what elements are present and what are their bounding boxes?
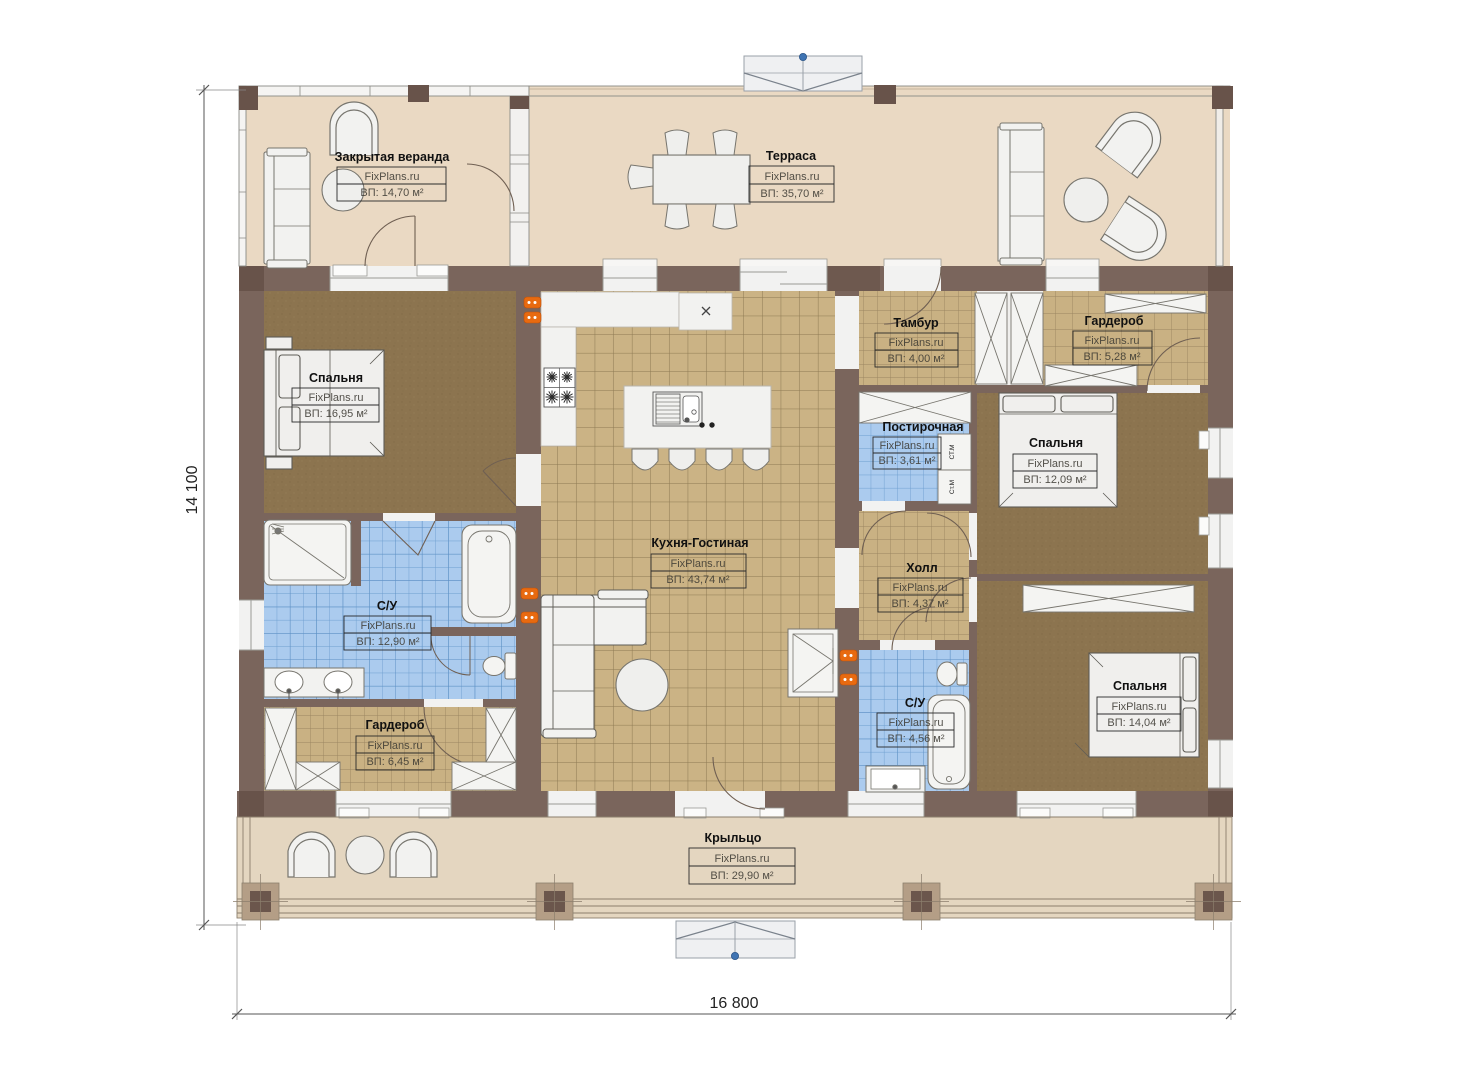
svg-text:FixPlans.ru: FixPlans.ru bbox=[364, 171, 419, 183]
svg-text:ВП: 5,28 м²: ВП: 5,28 м² bbox=[1083, 351, 1140, 363]
svg-text:FixPlans.ru: FixPlans.ru bbox=[888, 337, 943, 349]
svg-text:Кухня-Гостиная: Кухня-Гостиная bbox=[651, 536, 748, 550]
svg-text:FixPlans.ru: FixPlans.ru bbox=[1027, 458, 1082, 470]
svg-text:FixPlans.ru: FixPlans.ru bbox=[308, 392, 363, 404]
svg-text:14 100: 14 100 bbox=[184, 465, 201, 514]
svg-text:ВП: 16,95 м²: ВП: 16,95 м² bbox=[304, 408, 368, 420]
svg-text:Постирочная: Постирочная bbox=[882, 420, 963, 434]
svg-text:Спальня: Спальня bbox=[309, 371, 363, 385]
svg-text:Спальня: Спальня bbox=[1029, 436, 1083, 450]
svg-text:FixPlans.ru: FixPlans.ru bbox=[892, 582, 947, 594]
svg-text:ВП: 3,61 м²: ВП: 3,61 м² bbox=[878, 455, 935, 467]
svg-text:Тамбур: Тамбур bbox=[893, 316, 939, 330]
svg-text:FixPlans.ru: FixPlans.ru bbox=[1111, 701, 1166, 713]
svg-text:FixPlans.ru: FixPlans.ru bbox=[1084, 335, 1139, 347]
svg-text:Гардероб: Гардероб bbox=[365, 718, 424, 732]
svg-text:СТ.М: СТ.М bbox=[949, 445, 956, 460]
svg-text:ВП: 14,70 м²: ВП: 14,70 м² bbox=[360, 187, 424, 199]
svg-text:FixPlans.ru: FixPlans.ru bbox=[714, 853, 769, 865]
svg-text:ВП: 43,74 м²: ВП: 43,74 м² bbox=[666, 574, 730, 586]
svg-text:FixPlans.ru: FixPlans.ru bbox=[360, 620, 415, 632]
svg-text:Спальня: Спальня bbox=[1113, 679, 1167, 693]
svg-text:ВП: 4,00 м²: ВП: 4,00 м² bbox=[887, 353, 944, 365]
svg-text:Терраса: Терраса bbox=[766, 149, 817, 163]
svg-text:ВП: 6,45 м²: ВП: 6,45 м² bbox=[366, 756, 423, 768]
svg-text:ВП: 14,04 м²: ВП: 14,04 м² bbox=[1107, 717, 1171, 729]
svg-text:FixPlans.ru: FixPlans.ru bbox=[879, 440, 934, 452]
svg-text:Холл: Холл bbox=[906, 561, 937, 575]
svg-text:ВП: 35,70 м²: ВП: 35,70 м² bbox=[760, 188, 824, 200]
svg-text:ВП: 4,37 м²: ВП: 4,37 м² bbox=[891, 598, 948, 610]
svg-text:FixPlans.ru: FixPlans.ru bbox=[888, 717, 943, 729]
svg-text:Ст.М: Ст.М bbox=[949, 480, 956, 494]
svg-text:FixPlans.ru: FixPlans.ru bbox=[670, 558, 725, 570]
svg-text:ВП: 29,90 м²: ВП: 29,90 м² bbox=[710, 870, 774, 882]
svg-text:ВП: 4,56 м²: ВП: 4,56 м² bbox=[887, 733, 944, 745]
svg-text:FixPlans.ru: FixPlans.ru bbox=[764, 171, 819, 183]
svg-text:FixPlans.ru: FixPlans.ru bbox=[367, 740, 422, 752]
svg-text:Крыльцо: Крыльцо bbox=[705, 831, 762, 845]
svg-text:Гардероб: Гардероб bbox=[1084, 314, 1143, 328]
svg-text:Закрытая веранда: Закрытая веранда bbox=[335, 150, 451, 164]
svg-text:16 800: 16 800 bbox=[710, 995, 759, 1012]
svg-text:ВП: 12,90 м²: ВП: 12,90 м² bbox=[356, 636, 420, 648]
svg-text:С/У: С/У bbox=[377, 599, 398, 613]
svg-text:ВП: 12,09 м²: ВП: 12,09 м² bbox=[1023, 474, 1087, 486]
svg-text:С/У: С/У bbox=[905, 696, 926, 710]
